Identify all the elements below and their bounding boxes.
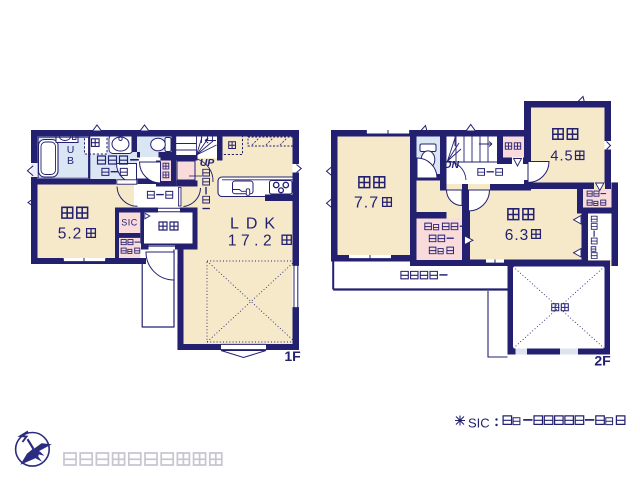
svg-text:4.5: 4.5 [550,149,573,165]
svg-text:17.2: 17.2 [228,233,276,250]
svg-text:1F: 1F [284,348,301,364]
svg-text:DN: DN [444,159,460,171]
svg-text:2F: 2F [594,353,611,369]
svg-text:6.3: 6.3 [505,227,530,244]
svg-text:SIC: SIC [121,218,138,228]
svg-text:UP: UP [200,157,216,169]
svg-text:7.7: 7.7 [354,195,379,212]
svg-text:SIC: SIC [468,416,490,431]
svg-text:LDK: LDK [230,216,282,233]
svg-text:5.2: 5.2 [58,226,83,243]
svg-text:B: B [67,155,74,167]
